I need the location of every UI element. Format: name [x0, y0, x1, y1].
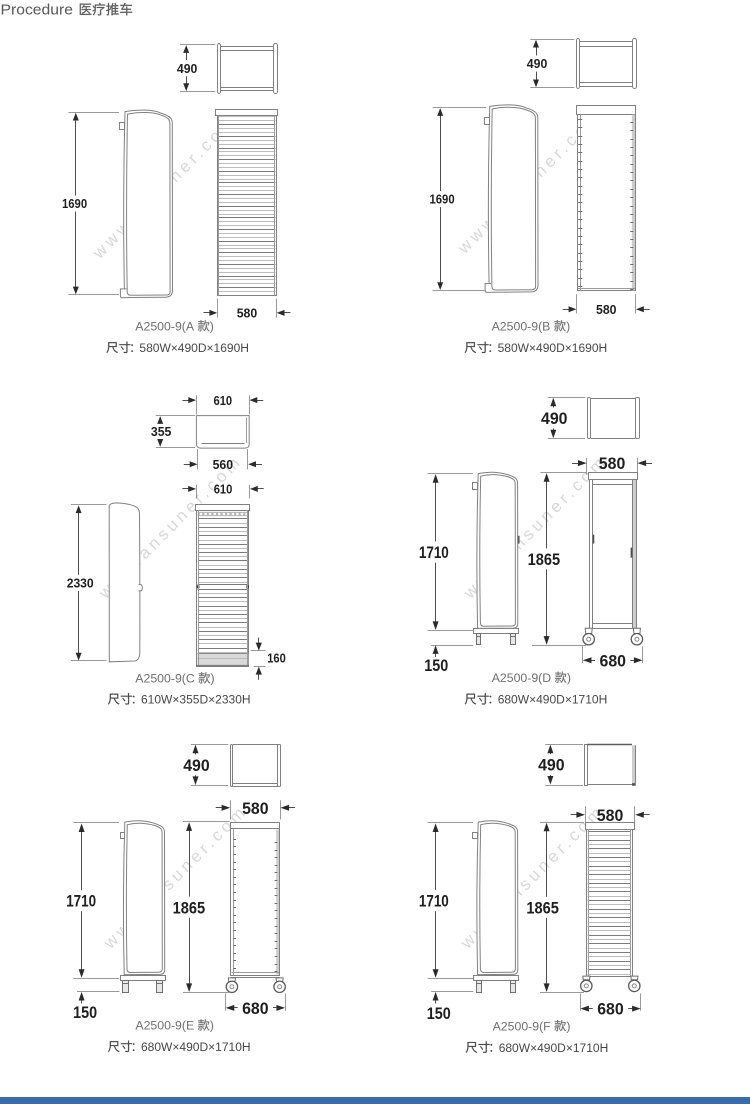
svg-text:1710: 1710 — [66, 892, 96, 911]
svg-text:150: 150 — [424, 656, 448, 675]
svg-text:490: 490 — [177, 61, 198, 76]
svg-text:1690: 1690 — [62, 196, 87, 211]
svg-text:680: 680 — [597, 1000, 624, 1019]
svg-text:490: 490 — [183, 756, 210, 775]
svg-text:580: 580 — [599, 454, 626, 473]
svg-text:580W×490D×1690H: 580W×490D×1690H — [498, 341, 608, 355]
svg-text:1865: 1865 — [173, 898, 206, 917]
svg-text:150: 150 — [427, 1004, 451, 1023]
svg-text:580W×490D×1690H: 580W×490D×1690H — [139, 341, 249, 355]
svg-text:160: 160 — [267, 650, 286, 665]
svg-text:A2500-9(C: A2500-9(C — [135, 672, 195, 686]
svg-text:): ) — [210, 1019, 214, 1033]
svg-text:1710: 1710 — [419, 543, 449, 562]
svg-text:A2500-9(F: A2500-9(F — [493, 1019, 552, 1033]
svg-text:680W×490D×1710H: 680W×490D×1710H — [141, 1040, 251, 1054]
svg-text:490: 490 — [541, 409, 568, 428]
svg-text:1710: 1710 — [419, 892, 449, 911]
svg-text:A2500-9(B: A2500-9(B — [492, 319, 551, 333]
svg-text:680: 680 — [242, 999, 269, 1018]
svg-text:A2500-9(D: A2500-9(D — [492, 671, 552, 685]
svg-text:2330: 2330 — [67, 576, 94, 591]
svg-text:560: 560 — [213, 457, 234, 472]
svg-text:580: 580 — [242, 799, 269, 818]
svg-text:490: 490 — [538, 756, 565, 775]
svg-text:490: 490 — [527, 56, 548, 71]
svg-text:610: 610 — [214, 482, 233, 497]
svg-text:1865: 1865 — [526, 899, 559, 918]
svg-text:): ) — [211, 672, 215, 686]
svg-text:680W×490D×1710H: 680W×490D×1710H — [498, 693, 608, 707]
svg-text:1690: 1690 — [430, 192, 455, 207]
svg-text:610: 610 — [214, 393, 233, 408]
svg-text:355: 355 — [151, 424, 172, 439]
svg-text:A2500-9(A: A2500-9(A — [135, 319, 195, 333]
svg-text:A2500-9(E: A2500-9(E — [135, 1019, 194, 1033]
svg-text:1865: 1865 — [528, 550, 561, 569]
svg-text:): ) — [566, 1019, 570, 1033]
svg-text:580: 580 — [596, 302, 617, 317]
svg-text:580: 580 — [237, 306, 258, 321]
svg-text:150: 150 — [73, 1003, 97, 1022]
svg-text:): ) — [210, 319, 214, 333]
svg-text:610W×355D×2330H: 610W×355D×2330H — [141, 693, 251, 707]
svg-text:): ) — [567, 671, 571, 685]
svg-text:680W×490D×1710H: 680W×490D×1710H — [499, 1041, 609, 1055]
svg-text:Procedure: Procedure — [1, 1, 74, 18]
svg-text:): ) — [566, 319, 570, 333]
svg-text:680: 680 — [600, 651, 627, 670]
